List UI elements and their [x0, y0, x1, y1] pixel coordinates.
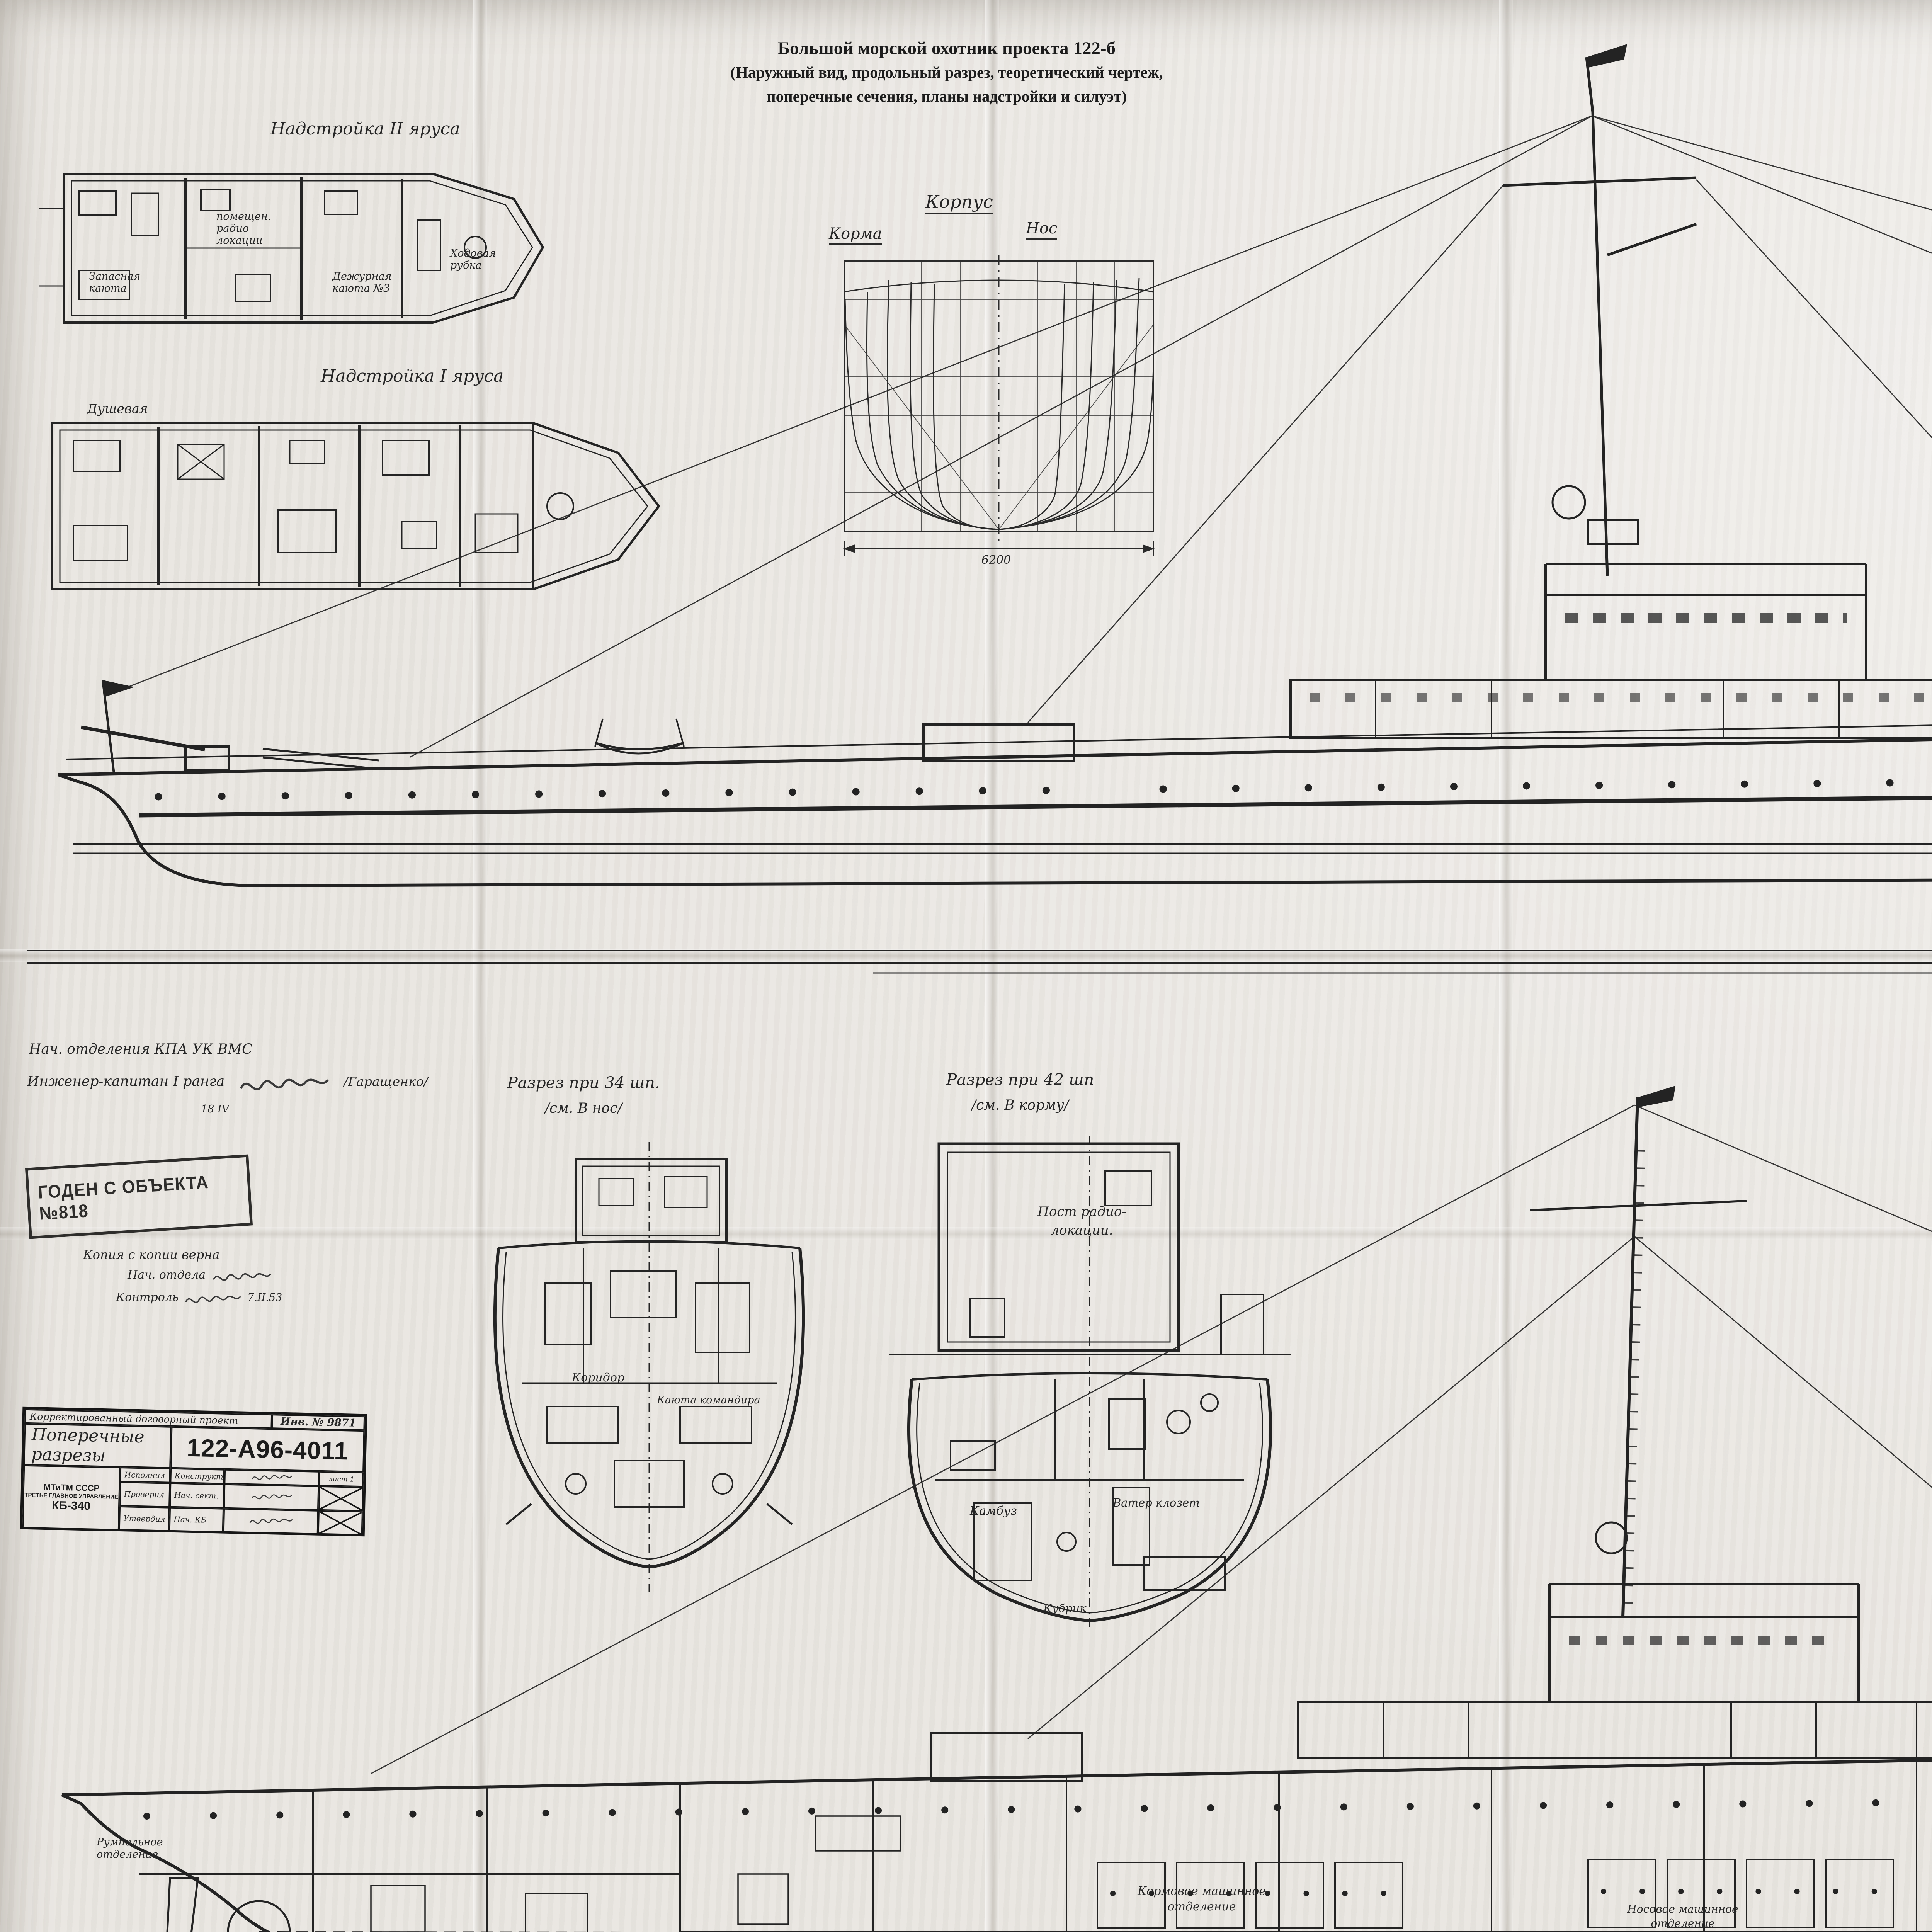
room-label: Носовое машинное отделение: [1615, 1902, 1750, 1930]
room-label: Кормовое машинное отделение: [1117, 1884, 1287, 1915]
room-label: Румпельное отделение: [97, 1836, 224, 1861]
blueprint-sheet: Большой морской охотник проекта 122-б (Н…: [0, 0, 1932, 1932]
longitudinal-section-drawing: [23, 1043, 1932, 1932]
side-elevation-drawing: [23, 23, 1932, 974]
